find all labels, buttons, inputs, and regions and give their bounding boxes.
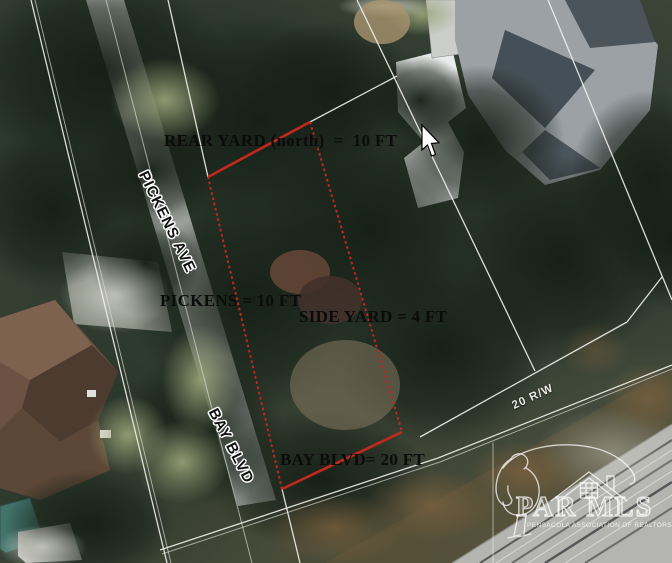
watermark-subtext: PENSACOLA ASSOCIATION OF REALTORS <box>527 522 672 529</box>
bare-soil <box>290 340 400 430</box>
side-yard-setback-label: SIDE YARD = 4 FT <box>299 307 447 327</box>
bay-blvd-setback-label: BAY BLVD= 20 FT <box>280 450 425 470</box>
parcel-map-view[interactable]: REAR YARD (north) = 10 FT PICKENS = 10 F… <box>0 0 672 563</box>
watermark-brand: PAR MLS <box>516 492 653 524</box>
pickens-setback-label: PICKENS = 10 FT <box>160 291 301 311</box>
map-overlay <box>0 0 672 563</box>
rear-yard-setback-label: REAR YARD (north) = 10 FT <box>164 131 397 151</box>
